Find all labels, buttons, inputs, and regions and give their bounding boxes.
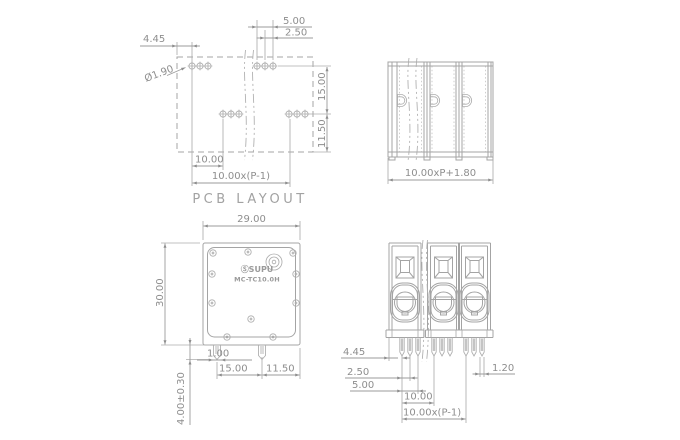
dim-pin-width: 1.00 bbox=[197, 349, 252, 361]
dim-label: 30.00 bbox=[155, 278, 166, 307]
housing-outline bbox=[203, 243, 300, 345]
dim-total-width: 10.00xP+1.80 bbox=[389, 168, 493, 180]
dim-label: 4.00±0.30 bbox=[176, 372, 187, 425]
break-line bbox=[408, 58, 410, 161]
dim-pole-pitch: 10.00 bbox=[403, 392, 434, 404]
solder-pins bbox=[400, 338, 484, 357]
dim-label: 15.00 bbox=[317, 72, 328, 101]
dim-label: 4.45 bbox=[343, 347, 365, 358]
dim-first-pitch: 10.00 bbox=[193, 155, 224, 167]
dim-pin-width: 1.20 bbox=[473, 363, 516, 374]
dim-row-spacing: 15.00 bbox=[317, 67, 328, 114]
dim-pin-spacing: 2.50 bbox=[345, 367, 418, 378]
top-view: ⓈSUPU MC-TC10.0H 29.00 30.00 1.00 15.00 bbox=[155, 214, 300, 425]
dim-label: 2.50 bbox=[347, 367, 369, 378]
dim-total-pitch: 10.00x(P-1) bbox=[193, 171, 290, 183]
dim-pin-group-span: 5.00 bbox=[350, 380, 426, 391]
dim-pin-group-span: 5.00 bbox=[248, 16, 312, 27]
dim-label: 5.00 bbox=[283, 16, 305, 27]
component-footprint-outline bbox=[177, 57, 313, 152]
screw-bosses bbox=[209, 249, 299, 340]
dim-label: 11.50 bbox=[266, 364, 295, 375]
dim-hole-diameter: Ø1.90 bbox=[143, 63, 186, 85]
dim-label: 29.00 bbox=[237, 214, 266, 225]
side-view: 10.00xP+1.80 bbox=[388, 58, 493, 184]
front-view: 4.45 2.50 5.00 10.00 10.00x(P-1) 1.20 bbox=[341, 240, 515, 423]
pcb-layout-caption: PCB LAYOUT bbox=[192, 192, 307, 207]
technical-drawing-page: 4.45 5.00 2.50 Ø1.90 15.00 11.50 bbox=[0, 0, 680, 440]
extension-lines bbox=[161, 221, 300, 379]
dim-label: 15.00 bbox=[219, 364, 248, 375]
pin-holes-top-row bbox=[188, 62, 278, 71]
dim-label: 11.50 bbox=[317, 119, 328, 148]
model-number-text: MC-TC10.0H bbox=[234, 276, 280, 284]
dim-pin-length: 4.00±0.30 bbox=[176, 338, 190, 425]
pole-sections bbox=[389, 243, 491, 330]
brand-logo-text: ⓈSUPU bbox=[241, 264, 274, 274]
break-line bbox=[422, 240, 424, 362]
dim-pin-to-edge: 11.50 bbox=[263, 364, 300, 376]
dim-label: 5.00 bbox=[352, 380, 374, 391]
dim-body-width: 29.00 bbox=[204, 214, 300, 226]
dim-label: 10.00x(P-1) bbox=[212, 171, 270, 182]
dim-label: 2.50 bbox=[285, 28, 307, 39]
wire-release-latches bbox=[398, 95, 472, 107]
dim-edge-to-pin: 4.45 bbox=[140, 34, 200, 46]
dim-total-pitch: 10.00x(P-1) bbox=[403, 408, 466, 420]
dim-label: 10.00xP+1.80 bbox=[405, 168, 476, 179]
terminal-block-drawing: 4.45 5.00 2.50 Ø1.90 15.00 11.50 bbox=[0, 0, 680, 440]
break-line bbox=[416, 58, 418, 161]
dim-label: 4.45 bbox=[143, 34, 165, 45]
dim-pin-spacing: 15.00 bbox=[218, 364, 262, 376]
pin-holes-bottom-row bbox=[219, 110, 310, 119]
dim-label: 10.00 bbox=[195, 155, 224, 166]
dim-label: 1.00 bbox=[207, 349, 229, 360]
dim-label: Ø1.90 bbox=[143, 63, 175, 85]
dim-row-to-edge: 11.50 bbox=[317, 115, 328, 152]
side-view-body bbox=[388, 62, 493, 160]
pcb-layout-view: 4.45 5.00 2.50 Ø1.90 15.00 11.50 bbox=[140, 16, 331, 207]
dim-label: 10.00 bbox=[404, 392, 433, 403]
dim-label: 1.20 bbox=[492, 363, 514, 374]
dim-body-depth: 30.00 bbox=[155, 244, 166, 345]
panel-texture-lines bbox=[400, 66, 486, 152]
break-line bbox=[245, 50, 247, 160]
base-flange bbox=[386, 330, 493, 338]
dim-label: 10.00x(P-1) bbox=[403, 408, 461, 419]
